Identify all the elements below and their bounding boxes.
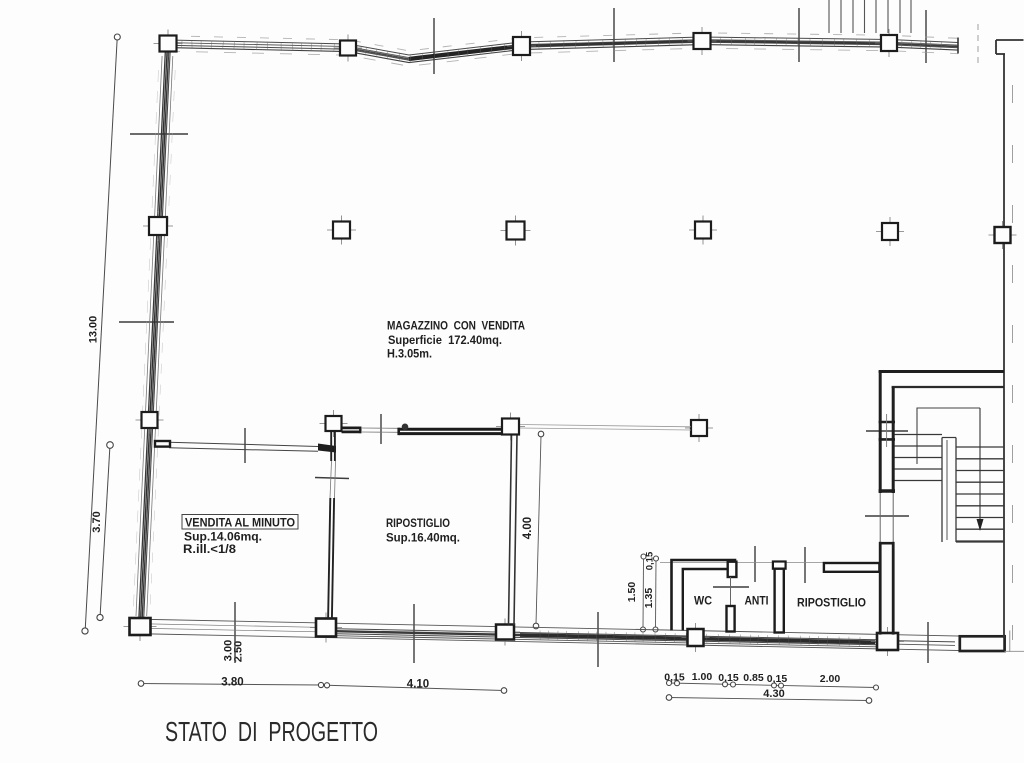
svg-text:2.00: 2.00 — [820, 673, 841, 685]
svg-text:3.80: 3.80 — [221, 677, 243, 689]
svg-text:3.70: 3.70 — [91, 511, 103, 532]
svg-text:1.00: 1.00 — [692, 671, 713, 683]
svg-text:Sup.16.40mq.: Sup.16.40mq. — [386, 531, 460, 545]
svg-text:4.30: 4.30 — [763, 688, 784, 700]
svg-text:0,15: 0,15 — [718, 672, 739, 684]
svg-text:13.00: 13.00 — [88, 316, 100, 344]
svg-text:0.85: 0.85 — [743, 672, 764, 684]
svg-text:0,15: 0,15 — [664, 672, 685, 684]
svg-text:4.00: 4.00 — [522, 517, 534, 539]
svg-text:Superficie 172.40mq.: Superficie 172.40mq. — [388, 333, 502, 347]
svg-text:ANTI: ANTI — [745, 594, 769, 608]
svg-text:RIPOSTIGLIO: RIPOSTIGLIO — [386, 516, 450, 530]
svg-text:R.ill.<1/8: R.ill.<1/8 — [183, 542, 236, 556]
svg-text:WC: WC — [694, 594, 712, 608]
svg-text:1.50: 1.50 — [626, 582, 638, 603]
svg-text:0,15: 0,15 — [645, 551, 656, 570]
svg-text:RIPOSTIGLIO: RIPOSTIGLIO — [797, 596, 866, 610]
svg-text:MAGAZZINO CON VENDITA: MAGAZZINO CON VENDITA — [387, 319, 525, 333]
svg-text:STATO DI PROGETTO: STATO DI PROGETTO — [165, 716, 378, 747]
svg-text:H.3.05m.: H.3.05m. — [387, 347, 432, 361]
svg-text:4.10: 4.10 — [407, 679, 429, 691]
svg-text:1.35: 1.35 — [643, 588, 655, 609]
svg-text:VENDITA AL MINUTO: VENDITA AL MINUTO — [185, 516, 295, 530]
svg-text:0,15: 0,15 — [767, 673, 788, 685]
